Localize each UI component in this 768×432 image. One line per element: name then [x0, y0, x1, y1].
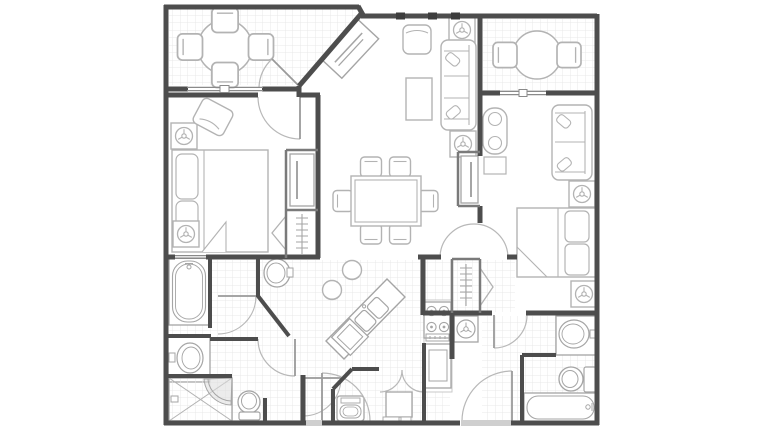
- dining-chair-icon: [390, 157, 411, 177]
- toilet-icon: [238, 391, 260, 420]
- ottoman-icon: [484, 157, 506, 174]
- dining-chair-icon: [333, 191, 353, 212]
- threshold: [306, 420, 322, 426]
- chaise-chair-icon: [483, 108, 507, 174]
- sliding-door-icon: [187, 86, 263, 93]
- tv-cabinet-icon: [461, 156, 478, 203]
- patio-chair-icon: [212, 63, 238, 88]
- threshold: [461, 420, 511, 426]
- patio-chair-icon: [212, 8, 238, 33]
- dining-chair-icon: [390, 224, 411, 244]
- dining-chair-icon: [361, 157, 382, 177]
- bifold-door-icon: [272, 216, 286, 250]
- dining-chair-icon: [361, 224, 382, 244]
- patio-chair-icon: [249, 34, 274, 60]
- closet-rod-icon: [272, 214, 308, 254]
- armchair-icon: [403, 25, 431, 54]
- bedroom-2-arched-entry: [440, 224, 508, 258]
- bathtub-icon: [524, 393, 597, 422]
- bar-stool-icon: [343, 261, 362, 280]
- accent-chair-icon: [191, 97, 234, 138]
- dining-area: [333, 157, 438, 244]
- pillow-icon: [565, 244, 589, 275]
- lamp-table-icon: [171, 123, 197, 149]
- tv-cabinet-icon: [290, 154, 314, 206]
- lamp-table-icon: [173, 221, 199, 247]
- coffee-table-icon: [406, 78, 432, 120]
- shower-icon: [169, 378, 232, 421]
- bedroom-1: [171, 97, 314, 254]
- refrigerator-icon: [425, 344, 451, 388]
- bedroom-1-door: [258, 97, 300, 139]
- pillow-icon: [565, 211, 589, 242]
- bathtub-icon: [169, 258, 209, 325]
- sofa-icon: [441, 40, 476, 130]
- washer-icon: [337, 396, 364, 421]
- floor-plan: [0, 0, 768, 432]
- living-room: [321, 17, 476, 157]
- patio-chair-icon: [178, 34, 203, 60]
- vanity-sink-icon: [556, 316, 596, 355]
- lamp-table-icon: [449, 17, 475, 43]
- patio-chair-icon: [557, 42, 581, 67]
- range-icon: [424, 302, 451, 341]
- bar-stool-icon: [323, 281, 342, 300]
- lamp-table-icon: [571, 281, 597, 307]
- patio-table-icon: [513, 31, 561, 79]
- floor-plan-page: [0, 0, 768, 432]
- utility-unit-icon: [386, 392, 412, 417]
- pillow-icon: [176, 154, 198, 199]
- patio-chair-icon: [493, 42, 517, 67]
- window-icon: [175, 256, 206, 259]
- dining-table-icon: [351, 176, 421, 226]
- lamp-table-icon: [569, 181, 595, 207]
- bed-icon: [517, 208, 597, 277]
- loveseat-icon: [552, 105, 592, 180]
- water-heater-icon: [454, 316, 478, 342]
- toilet-icon: [559, 367, 596, 392]
